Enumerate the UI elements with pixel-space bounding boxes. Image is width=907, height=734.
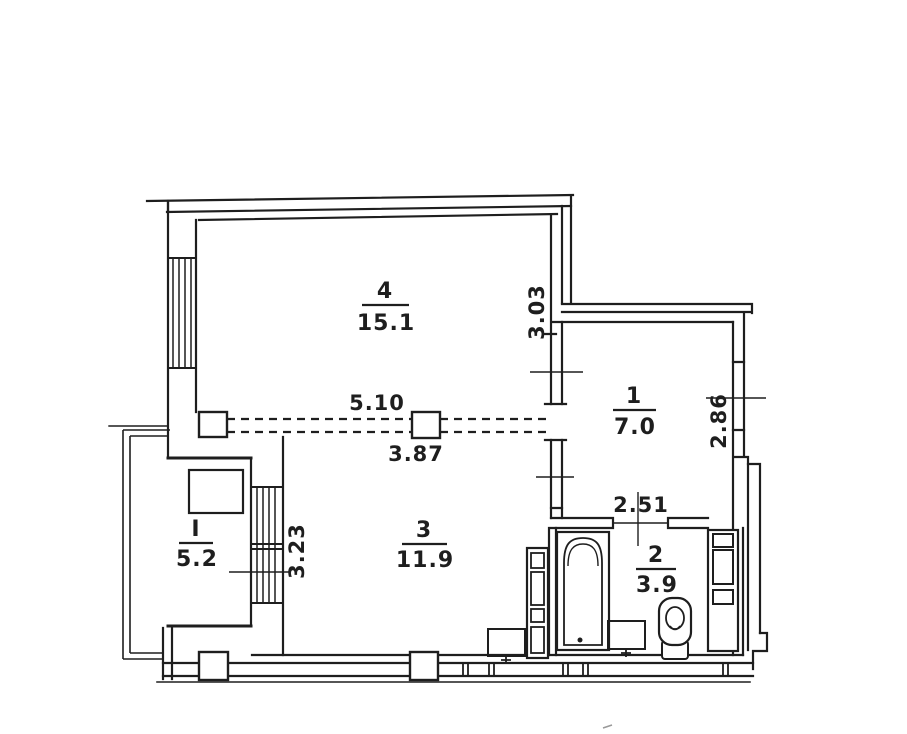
loggia-area: 5.2 <box>176 547 218 572</box>
scan-speck <box>603 725 612 728</box>
room2-area: 3.9 <box>636 573 678 598</box>
room4-number: 4 <box>377 279 393 304</box>
toilet <box>659 598 691 659</box>
loggia-label: I 5.2 <box>176 517 218 572</box>
room3-number: 3 <box>416 518 432 543</box>
dim-room3-side: 3.23 <box>285 523 309 579</box>
loggia-cabinet-box <box>189 470 243 513</box>
room1-number: 1 <box>626 384 642 409</box>
room4-window <box>168 258 196 368</box>
room4-area: 15.1 <box>357 311 415 336</box>
sink-left <box>488 629 525 664</box>
floor-plan-page: 4 15.1 1 7.0 2 3.9 3 11.9 I 5.2 5.10 3.8… <box>0 0 907 734</box>
room2-label: 2 3.9 <box>636 543 678 598</box>
dashed-partition <box>199 412 549 438</box>
bottom-wall-column-right <box>410 652 438 680</box>
dim-room3-top-width: 3.87 <box>388 442 444 466</box>
bathroom-fixtures <box>527 530 738 659</box>
floor-plan-drawing: 4 15.1 1 7.0 2 3.9 3 11.9 I 5.2 5.10 3.8… <box>0 0 907 734</box>
room2-number: 2 <box>648 543 664 568</box>
dim-bathroom-top-width: 2.51 <box>613 493 669 517</box>
dimension-labels: 5.10 3.87 2.51 3.03 2.86 3.23 <box>285 284 731 579</box>
loggia-outline <box>123 430 170 659</box>
bottom-wall-column-left <box>199 652 228 680</box>
duct-shaft-right <box>708 530 738 651</box>
sink-right <box>608 621 645 657</box>
loggia-number: I <box>191 517 200 542</box>
bathtub <box>557 532 609 650</box>
room1-area: 7.0 <box>614 415 656 440</box>
room1-label: 1 7.0 <box>613 384 656 440</box>
loggia-window <box>251 487 283 603</box>
duct-shaft-left <box>527 548 548 658</box>
room4-label: 4 15.1 <box>357 279 415 336</box>
room3-area: 11.9 <box>396 548 454 573</box>
dim-room1-side: 2.86 <box>707 393 731 449</box>
dim-room4-side: 3.03 <box>525 284 549 340</box>
dim-room4-width: 5.10 <box>349 391 405 415</box>
room3-label: 3 11.9 <box>396 518 454 573</box>
dimension-marks <box>229 372 766 572</box>
